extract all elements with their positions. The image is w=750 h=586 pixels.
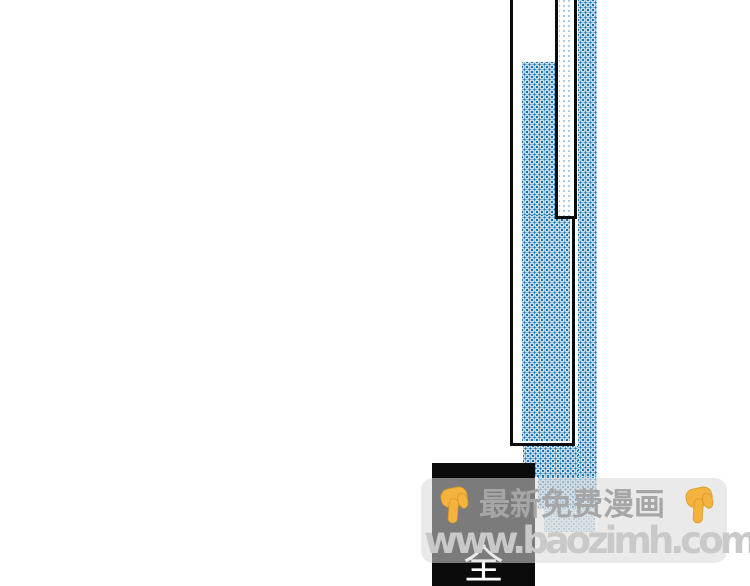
comic-panel-narrow [555,0,577,219]
comic-page: 全 最新免费漫画 www.baozimh.com [0,0,750,586]
watermark-site-url: www.baozimh.com [424,522,724,559]
watermark-title: 最新免费漫画 [474,489,670,522]
halftone-shading-right-band [578,0,597,477]
halftone-shading-inner-light [559,0,573,216]
halftone-shading-panel-lower [522,215,570,441]
halftone-shading-panel-left [522,62,555,215]
